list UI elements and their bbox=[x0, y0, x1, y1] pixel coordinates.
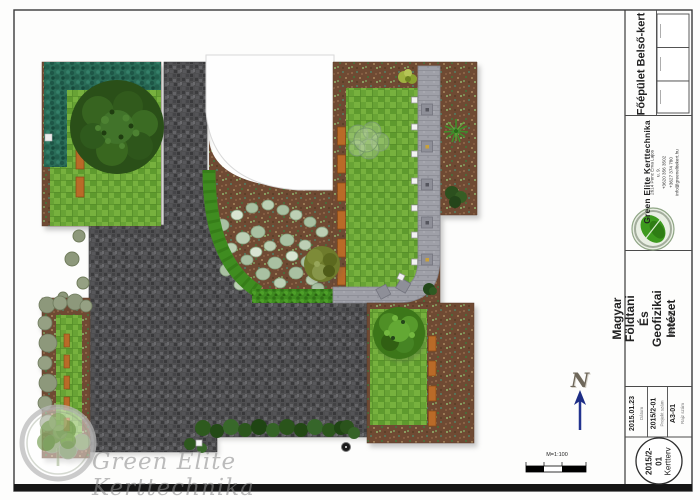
watermark-logo bbox=[22, 407, 94, 479]
garden-right bbox=[333, 62, 477, 303]
project-title: Magyar Földtani És Geofizikai Intézet bbox=[626, 252, 662, 385]
olive-tree bbox=[304, 246, 340, 282]
scale-bar bbox=[526, 462, 586, 472]
round-tree bbox=[373, 307, 425, 359]
stamp-line2: Kertterv bbox=[664, 447, 674, 475]
company-address: 2614 Penc Erva Lajos u. 9. bbox=[650, 149, 662, 195]
gap-shrubs bbox=[58, 230, 89, 302]
company-email: info@greenelitekert.hu bbox=[674, 149, 680, 195]
scale-label: M=1:100 bbox=[520, 452, 594, 458]
north-label: N bbox=[566, 368, 594, 392]
drawing-sheet: Főépület Belső-kert Green Elite Kerttech… bbox=[0, 0, 700, 500]
north-arrow bbox=[574, 390, 586, 430]
drawing-title: Főépület Belső-kert bbox=[627, 13, 656, 114]
watermark-text: Green Elite Kerttechnika bbox=[92, 449, 392, 500]
project-subtitle: Belső kert bbox=[666, 298, 678, 350]
garden-bottom-right bbox=[367, 303, 474, 443]
field-project-label: Projekt szám bbox=[658, 389, 666, 437]
stamp-text: 2015/2-01 Kertterv bbox=[645, 438, 673, 484]
bed-top-left bbox=[42, 62, 164, 226]
large-tree bbox=[70, 80, 164, 174]
company-contact: 2614 Penc Erva Lajos u. 9. +3620 356 350… bbox=[654, 116, 676, 228]
site-plan-graphics bbox=[0, 0, 700, 500]
field-date-value: 2015.01.23 bbox=[627, 389, 638, 437]
field-date-label: Dátum bbox=[638, 389, 646, 437]
field-sheet-label: Rajz szám bbox=[678, 389, 686, 437]
stamp-line1: 2015/2-01 bbox=[645, 447, 664, 475]
company-phone: +3620 356 3502 +3627 374 780 bbox=[662, 149, 674, 195]
